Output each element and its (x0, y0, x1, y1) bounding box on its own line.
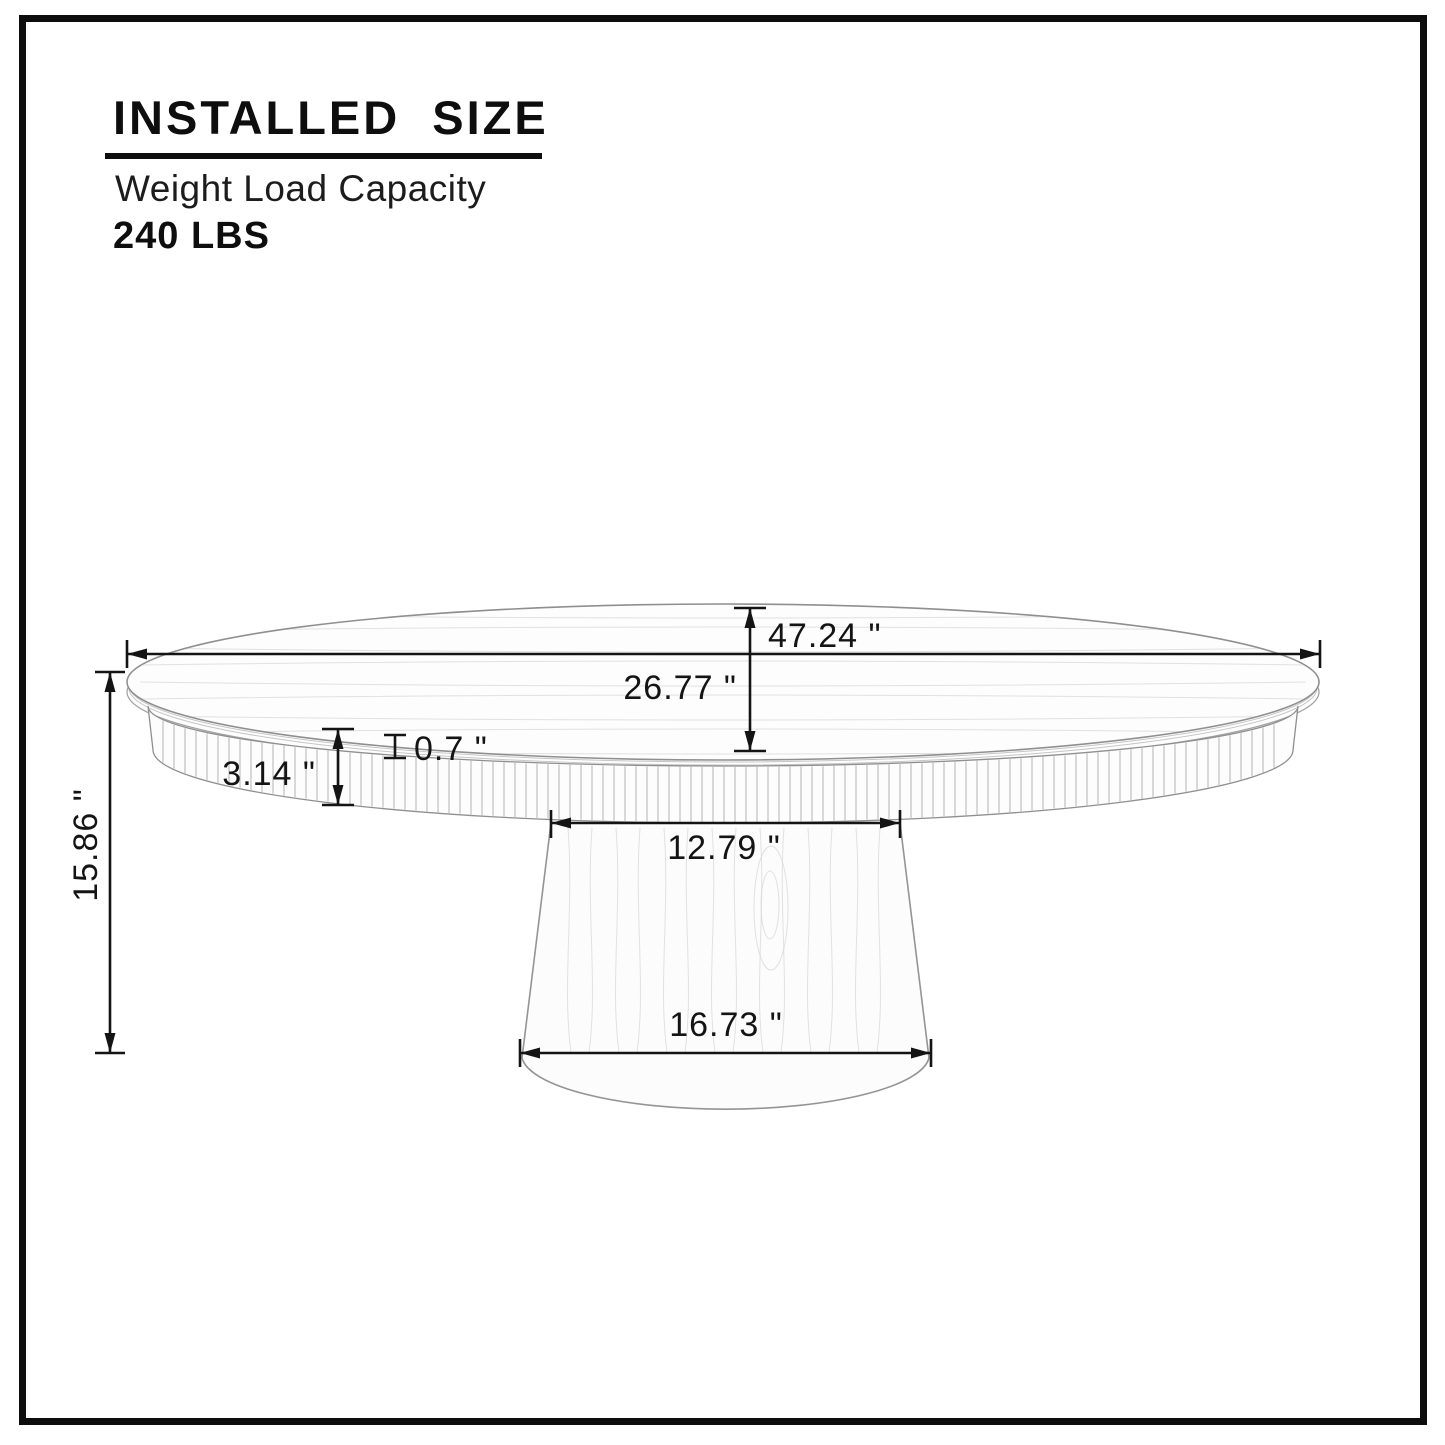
dim-top-thickness-label: 0.7 " (414, 730, 488, 768)
dim-overall-height: 15.86 " (67, 672, 125, 1053)
dim-apron-height-label: 3.14 " (222, 755, 316, 793)
dim-pedestal-bottom-width-label: 16.73 " (669, 1006, 783, 1044)
dim-pedestal-top-width-label: 12.79 " (667, 829, 781, 867)
installed-size-infographic: INSTALLED SIZE Weight Load Capacity 240 … (0, 0, 1445, 1445)
dim-top-depth-label: 26.77 " (623, 669, 737, 707)
dim-top-diameter-label: 47.24 " (768, 617, 882, 655)
dim-overall-height-label: 15.86 " (67, 788, 105, 902)
table-dimension-diagram: 47.24 " 26.77 " 15.86 " (0, 0, 1445, 1445)
